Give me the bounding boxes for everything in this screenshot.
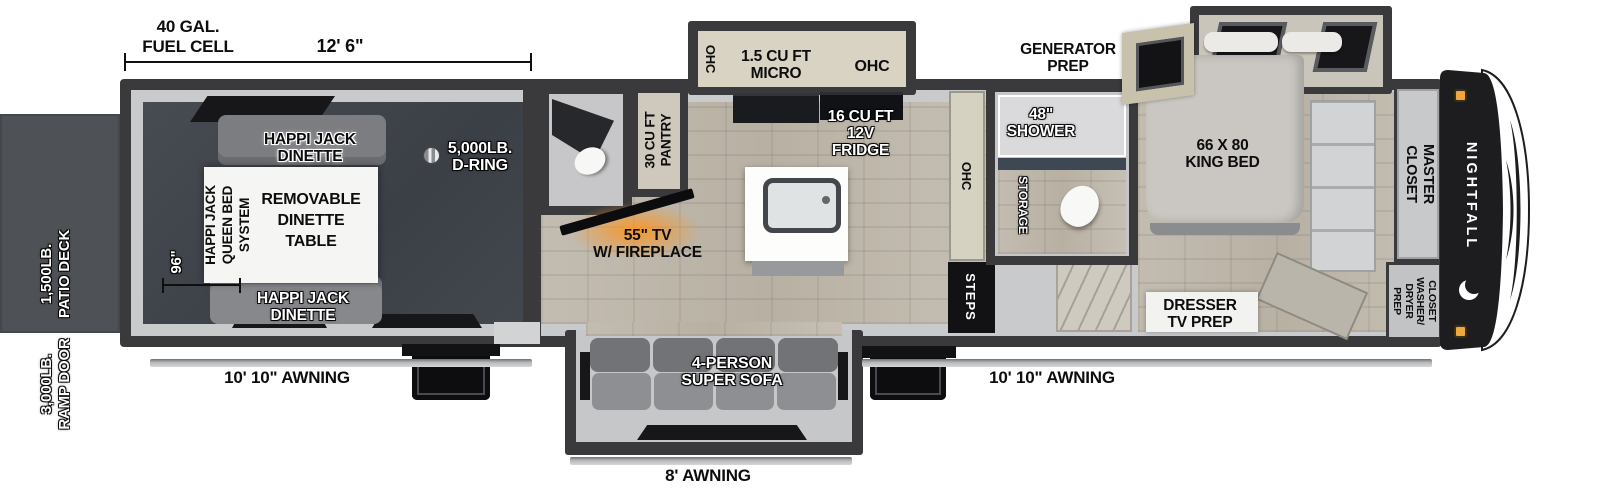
steps-label: STEPS xyxy=(963,267,979,327)
brand-label: NIGHTFALL xyxy=(1461,111,1479,281)
generator-door xyxy=(1136,37,1184,92)
shower-label: 48" SHOWER xyxy=(995,106,1087,140)
awning-left-label: 10' 10" AWNING xyxy=(207,369,367,386)
ohc-wall-label: OHC xyxy=(959,156,975,196)
master-closet-label: MASTER CLOSET xyxy=(1400,114,1436,234)
bedroom-steps xyxy=(1056,262,1132,332)
sofa-slide-floor-opening xyxy=(586,322,842,336)
dresser-label: DRESSER TV PREP xyxy=(1140,297,1260,331)
sofa-window-left xyxy=(580,352,590,400)
bathroom-counter xyxy=(998,158,1126,170)
bed-foot-bench xyxy=(1150,223,1300,235)
island-sink xyxy=(763,178,841,233)
sofa-seat-cushion xyxy=(592,373,651,410)
island-mat xyxy=(752,261,844,276)
awning-rear-bar xyxy=(570,457,852,465)
bed-pillow-left xyxy=(1204,32,1278,52)
dimension-tick-left xyxy=(124,53,126,71)
front-cap xyxy=(1432,64,1532,356)
marker-light-top xyxy=(1455,90,1466,101)
garage-width-tick-left xyxy=(162,278,164,293)
microwave-label: 1.5 CU FT MICRO xyxy=(716,48,836,82)
patio-deck: 1,500LB. PATIO DECK 3,000LB. RAMP DOOR xyxy=(0,114,120,333)
awning-right-label: 10' 10" AWNING xyxy=(972,369,1132,386)
ohc-slide-right-label: OHC xyxy=(842,58,902,75)
garage-width-label: 96" xyxy=(168,242,186,282)
sofa-window-right xyxy=(838,352,848,400)
awning-left-bar xyxy=(150,359,532,367)
floorplan-diagram: 40 GAL. FUEL CELL 12' 6" 1,500LB. PATIO … xyxy=(0,0,1600,491)
fuel-cell-label: 40 GAL. FUEL CELL xyxy=(133,17,243,57)
storage-label: STORAGE xyxy=(1017,170,1031,240)
garage-width-tick-right xyxy=(239,278,241,293)
washer-dryer-label: CLOSET WASHER/ DRYER PREP xyxy=(1391,263,1437,339)
bed-pillow-right xyxy=(1282,32,1342,52)
garage-window-bottom-right xyxy=(372,314,482,328)
dinette-rear-label: HAPPI JACK DINETTE xyxy=(233,290,373,324)
pantry-label: 30 CU FT PANTRY xyxy=(643,93,677,188)
sink-faucet xyxy=(822,196,830,204)
garage-length-label: 12' 6" xyxy=(300,38,380,55)
tv-fireplace-label: 55" TV W/ FIREPLACE xyxy=(570,227,725,261)
garage-living-wall xyxy=(523,90,541,336)
removable-table-label: REMOVABLE DINETTE TABLE xyxy=(247,189,375,252)
sofa-back-cushion xyxy=(590,338,650,372)
marker-light-bottom xyxy=(1455,326,1466,337)
awning-rear-label: 8' AWNING xyxy=(628,467,788,484)
dimension-tick-right xyxy=(530,53,532,71)
sofa-label: 4-PERSON SUPER SOFA xyxy=(652,355,812,389)
d-ring-label: 5,000LB. D-RING xyxy=(430,140,530,174)
entry-step-left-lip xyxy=(402,344,500,356)
range-cooktop xyxy=(733,93,819,123)
ramp-door-label: 3,000LB. RAMP DOOR xyxy=(38,319,78,449)
garage-length-dimension-line xyxy=(125,61,532,63)
entry-door-rear xyxy=(494,322,540,344)
generator-prep-label: GENERATOR PREP xyxy=(1008,41,1128,75)
awning-right-bar xyxy=(862,359,1432,367)
garage-width-line xyxy=(163,284,241,286)
fridge-label: 16 CU FT 12V FRIDGE xyxy=(808,108,913,159)
entry-step-right-lip xyxy=(862,346,956,358)
bedroom-wardrobe xyxy=(1310,100,1376,272)
dinette-front-label: HAPPI JACK DINETTE xyxy=(240,131,380,165)
sofa-window-bottom xyxy=(637,425,807,440)
king-bed-label: 66 X 80 KING BED xyxy=(1160,137,1285,171)
